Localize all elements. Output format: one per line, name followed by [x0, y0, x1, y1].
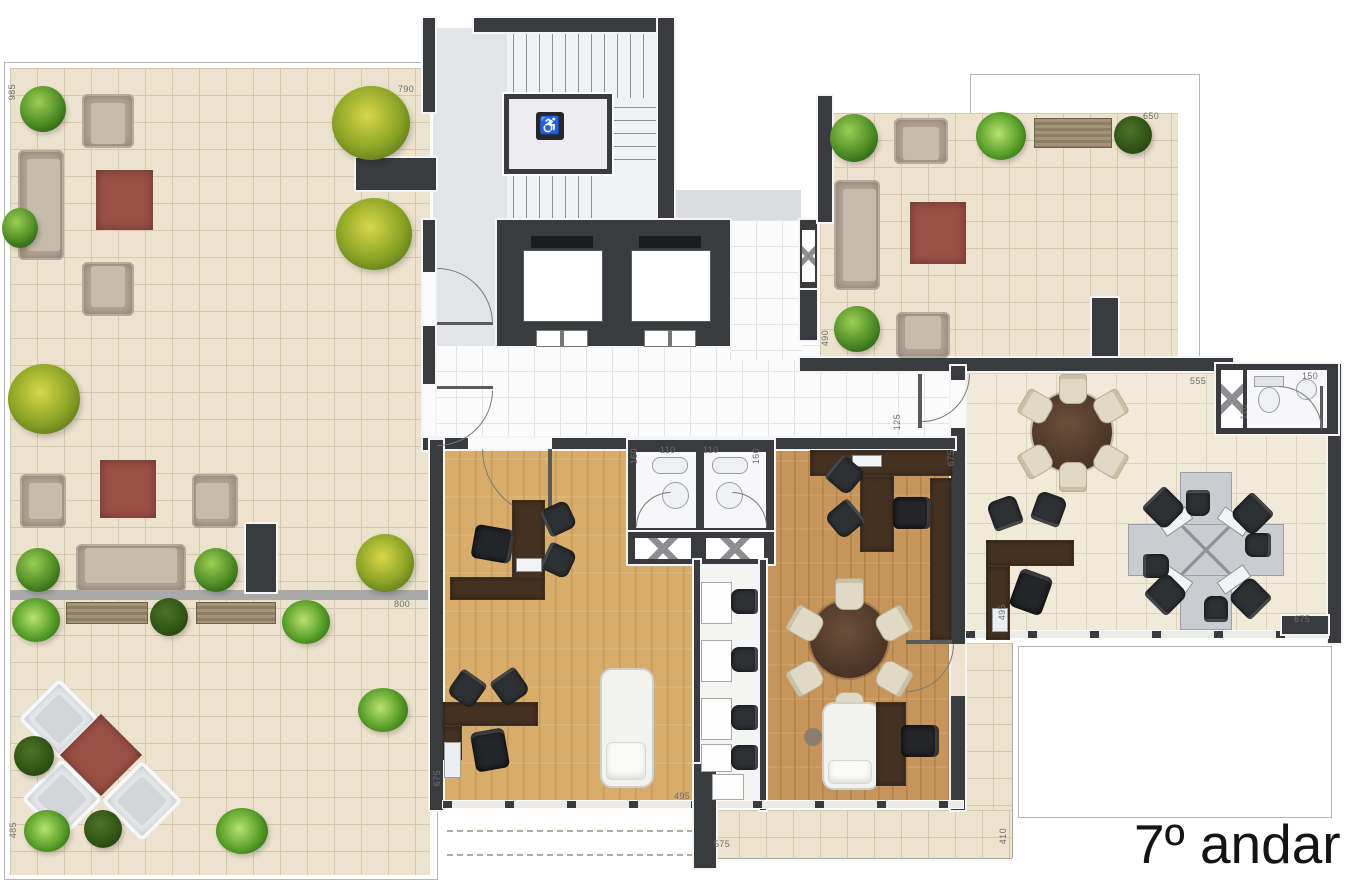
corridor-left-door-gap-2	[423, 384, 435, 438]
armchair	[82, 94, 134, 148]
dimension-label: 985	[8, 84, 17, 100]
plant	[830, 114, 878, 162]
office-chair	[731, 705, 758, 730]
side-table	[712, 774, 744, 800]
sofa	[76, 544, 186, 592]
tree-dark	[14, 736, 54, 776]
dimension-label: 675	[433, 770, 442, 786]
tree	[332, 86, 410, 160]
terrace-topright-south-wall	[800, 358, 1233, 371]
plant	[20, 86, 66, 132]
desk-return	[450, 577, 545, 600]
balcony-projection-band	[443, 810, 695, 868]
dimension-label: 575	[714, 840, 730, 849]
tree	[8, 364, 80, 434]
zone-left-wall	[951, 366, 965, 810]
dimension-label: 110	[660, 446, 676, 455]
dimension-label: 125	[893, 414, 902, 430]
plant	[194, 548, 238, 592]
executive-chair	[901, 725, 939, 757]
bathroom-2-sink	[712, 457, 748, 474]
elevator-lobby-east-floor	[730, 220, 802, 360]
tree-dark	[1114, 116, 1152, 154]
dimension-label: 790	[398, 85, 414, 94]
armchair	[20, 474, 66, 528]
dimension-label: 485	[9, 822, 18, 838]
bench	[196, 602, 276, 624]
desk	[442, 702, 538, 726]
floor-title: 7º andar	[1134, 812, 1341, 876]
office-left-door-gap	[468, 438, 552, 449]
training-strip-east-wall	[760, 560, 766, 810]
dimension-label: 410	[999, 828, 1008, 844]
terrace-topright-west-wall-upper	[818, 96, 832, 222]
stair-left-wall-upper	[423, 18, 435, 112]
terrace-topright-west-wall-lower	[800, 290, 817, 340]
elevator-2-header	[639, 236, 701, 248]
tree-dark	[84, 810, 122, 848]
shaft-hatch-1	[635, 538, 691, 559]
bathroom-1-sink	[652, 457, 688, 474]
armchair	[82, 262, 134, 316]
palm-plant	[358, 688, 408, 732]
dimension-label: 490	[821, 330, 830, 346]
monitor	[516, 558, 542, 572]
south-strip-floor	[712, 810, 1012, 859]
dimension-label: 160	[630, 448, 639, 464]
plant	[834, 306, 880, 352]
dimension-label: 495	[674, 792, 690, 801]
shaft-hatch-east	[802, 230, 815, 282]
palm-plant	[24, 810, 70, 852]
executive-chair	[470, 524, 515, 564]
office-chair	[1186, 490, 1210, 516]
elevator-1-header	[531, 236, 593, 248]
stair-treads-upper	[513, 34, 657, 98]
l-desk	[986, 540, 1074, 566]
palm-plant	[216, 808, 268, 854]
credenza	[930, 478, 952, 640]
roof-void-outline	[1018, 646, 1332, 818]
stair-right-wall	[658, 18, 674, 232]
office-chair	[731, 589, 758, 614]
dimension-label: 495	[998, 604, 1007, 620]
dimension-label: 150	[1302, 372, 1318, 381]
wall-counter	[701, 698, 732, 740]
armchair	[894, 118, 948, 164]
wall-counter	[701, 582, 732, 624]
zone-south-window-wall	[966, 631, 1328, 638]
elevator-1-door	[536, 330, 588, 347]
desk	[860, 476, 894, 552]
office-chair	[731, 647, 758, 672]
dimension-label: 650	[1143, 112, 1159, 121]
executive-chair	[470, 727, 510, 772]
dining-chair	[835, 578, 864, 610]
projection-dash-2	[447, 854, 693, 856]
tree	[336, 198, 412, 270]
pillow	[828, 760, 872, 784]
office-chair	[731, 745, 758, 770]
dimension-label: 555	[1190, 377, 1206, 386]
tree	[356, 534, 414, 592]
dimension-label: 160	[752, 448, 761, 464]
pillow	[606, 742, 646, 780]
stair-top-wall	[474, 18, 674, 32]
rug	[910, 202, 966, 264]
plant	[2, 208, 38, 248]
plant	[16, 548, 60, 592]
toilet-bowl	[1258, 387, 1280, 413]
bench	[1034, 118, 1112, 148]
dimension-label: 110	[703, 446, 719, 455]
elevator-back-hall-floor	[673, 190, 801, 222]
elevator-2-door	[644, 330, 696, 347]
corridor-left-door-gap-1	[423, 272, 435, 326]
wall-counter	[701, 744, 732, 772]
sofa	[834, 180, 880, 290]
floor-plan-canvas: ♿	[0, 0, 1366, 886]
terrace-stub-wall-left	[356, 158, 436, 190]
dining-chair	[1059, 462, 1087, 492]
palm-plant	[12, 598, 60, 642]
dimension-label: 675	[947, 450, 956, 466]
tree-dark	[150, 598, 188, 636]
armchair	[192, 474, 238, 528]
office-chair	[1143, 554, 1169, 578]
terrace-topright-stub-wall	[1092, 298, 1118, 366]
projection-dash-1	[447, 830, 693, 832]
bench	[66, 602, 148, 624]
dimension-label: 110	[1240, 404, 1249, 420]
terrace-stub-wall-mid	[246, 524, 276, 592]
office-chair	[1204, 596, 1228, 622]
meeting-table	[810, 600, 888, 678]
dining-chair	[1059, 374, 1087, 404]
dimension-label: 675	[1294, 615, 1310, 624]
dimension-label: 800	[394, 600, 410, 609]
stool	[804, 728, 822, 746]
corridor-terrace-door-leaf	[437, 386, 493, 389]
elevator-2-cab	[631, 250, 711, 322]
rug	[100, 460, 156, 518]
printer	[444, 742, 461, 778]
armchair	[896, 312, 950, 358]
elevator-1-cab	[523, 250, 603, 322]
wheelchair-icon: ♿	[536, 112, 564, 140]
palm-plant	[282, 600, 330, 644]
rug	[96, 170, 153, 230]
wall-counter	[701, 640, 732, 682]
palm-plant	[976, 112, 1026, 160]
shaft-hatch-2	[706, 538, 764, 559]
executive-chair	[893, 497, 931, 529]
office-chair	[1245, 533, 1271, 557]
